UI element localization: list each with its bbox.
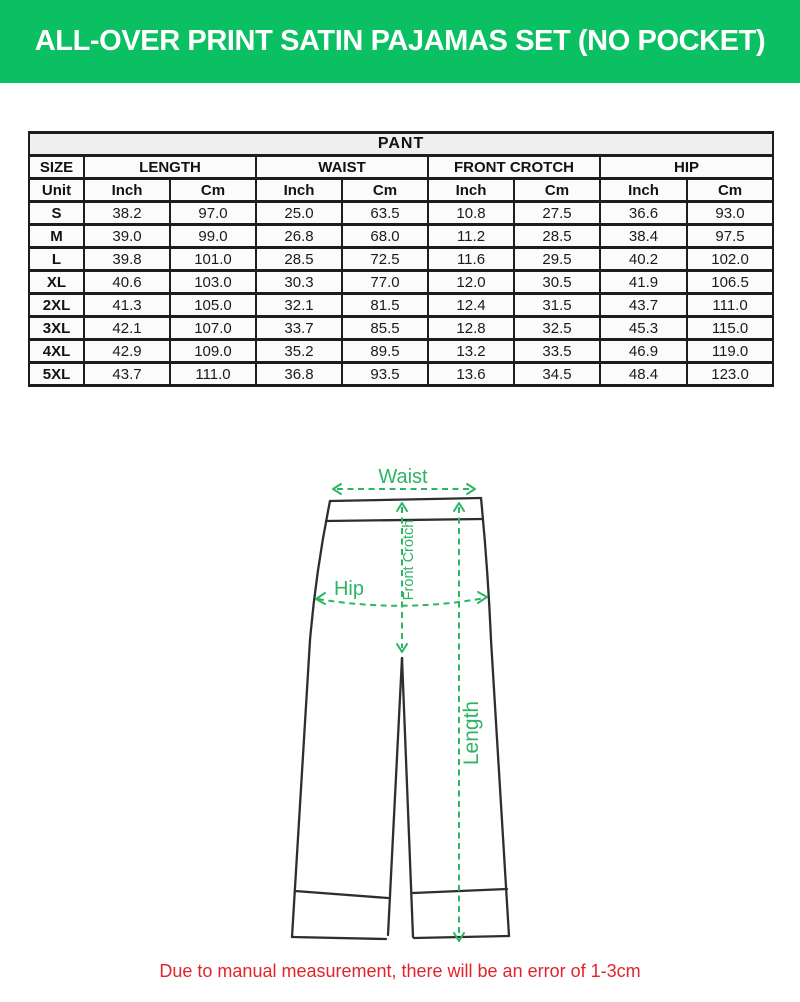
size-cell: XL <box>29 271 84 294</box>
unit-cell: Unit <box>29 179 84 202</box>
value-cell: 93.5 <box>342 363 428 386</box>
unit-cell: Cm <box>170 179 256 202</box>
value-cell: 111.0 <box>170 363 256 386</box>
size-cell: 3XL <box>29 317 84 340</box>
size-cell: 5XL <box>29 363 84 386</box>
value-cell: 26.8 <box>256 225 342 248</box>
size-cell: S <box>29 202 84 225</box>
value-cell: 42.9 <box>84 340 170 363</box>
hip-label: Hip <box>334 578 364 600</box>
table-title-row: PANT <box>29 133 773 156</box>
value-cell: 29.5 <box>514 248 600 271</box>
value-cell: 45.3 <box>600 317 687 340</box>
unit-cell: Inch <box>256 179 342 202</box>
value-cell: 28.5 <box>256 248 342 271</box>
value-cell: 89.5 <box>342 340 428 363</box>
value-cell: 123.0 <box>687 363 773 386</box>
value-cell: 36.8 <box>256 363 342 386</box>
size-cell: 4XL <box>29 340 84 363</box>
value-cell: 106.5 <box>687 271 773 294</box>
value-cell: 12.4 <box>428 294 514 317</box>
table-row: 4XL42.9109.035.289.513.233.546.9119.0 <box>29 340 773 363</box>
value-cell: 103.0 <box>170 271 256 294</box>
value-cell: 97.0 <box>170 202 256 225</box>
col-group-waist: WAIST <box>256 156 428 179</box>
value-cell: 35.2 <box>256 340 342 363</box>
unit-cell: Inch <box>600 179 687 202</box>
value-cell: 40.2 <box>600 248 687 271</box>
value-cell: 109.0 <box>170 340 256 363</box>
value-cell: 27.5 <box>514 202 600 225</box>
col-group-length: LENGTH <box>84 156 256 179</box>
unit-cell: Inch <box>84 179 170 202</box>
value-cell: 105.0 <box>170 294 256 317</box>
table-group-row: SIZE LENGTH WAIST FRONT CROTCH HIP <box>29 156 773 179</box>
unit-cell: Cm <box>687 179 773 202</box>
value-cell: 33.5 <box>514 340 600 363</box>
value-cell: 38.2 <box>84 202 170 225</box>
value-cell: 119.0 <box>687 340 773 363</box>
value-cell: 72.5 <box>342 248 428 271</box>
value-cell: 12.8 <box>428 317 514 340</box>
value-cell: 30.5 <box>514 271 600 294</box>
value-cell: 34.5 <box>514 363 600 386</box>
length-label: Length <box>460 701 483 765</box>
table-row: XL40.6103.030.377.012.030.541.9106.5 <box>29 271 773 294</box>
value-cell: 39.0 <box>84 225 170 248</box>
table-unit-row: Unit Inch Cm Inch Cm Inch Cm Inch Cm <box>29 179 773 202</box>
size-cell: L <box>29 248 84 271</box>
value-cell: 102.0 <box>687 248 773 271</box>
header-banner: ALL-OVER PRINT SATIN PAJAMAS SET (NO POC… <box>0 0 800 83</box>
value-cell: 25.0 <box>256 202 342 225</box>
value-cell: 77.0 <box>342 271 428 294</box>
value-cell: 107.0 <box>170 317 256 340</box>
value-cell: 81.5 <box>342 294 428 317</box>
size-table: PANT SIZE LENGTH WAIST FRONT CROTCH HIP … <box>28 131 774 387</box>
value-cell: 115.0 <box>687 317 773 340</box>
value-cell: 28.5 <box>514 225 600 248</box>
value-cell: 36.6 <box>600 202 687 225</box>
col-group-size: SIZE <box>29 156 84 179</box>
value-cell: 31.5 <box>514 294 600 317</box>
value-cell: 11.2 <box>428 225 514 248</box>
unit-cell: Cm <box>342 179 428 202</box>
value-cell: 97.5 <box>687 225 773 248</box>
col-group-front-crotch: FRONT CROTCH <box>428 156 600 179</box>
table-row: L39.8101.028.572.511.629.540.2102.0 <box>29 248 773 271</box>
unit-cell: Cm <box>514 179 600 202</box>
table-title: PANT <box>29 133 773 156</box>
size-table-body: S38.297.025.063.510.827.536.693.0M39.099… <box>29 202 773 386</box>
value-cell: 40.6 <box>84 271 170 294</box>
size-chart-page: ALL-OVER PRINT SATIN PAJAMAS SET (NO POC… <box>0 0 800 1002</box>
value-cell: 12.0 <box>428 271 514 294</box>
unit-cell: Inch <box>428 179 514 202</box>
value-cell: 30.3 <box>256 271 342 294</box>
value-cell: 85.5 <box>342 317 428 340</box>
page-title: ALL-OVER PRINT SATIN PAJAMAS SET (NO POC… <box>35 25 766 58</box>
value-cell: 111.0 <box>687 294 773 317</box>
table-row: 5XL43.7111.036.893.513.634.548.4123.0 <box>29 363 773 386</box>
value-cell: 93.0 <box>687 202 773 225</box>
value-cell: 11.6 <box>428 248 514 271</box>
pants-diagram: Waist Front Crotch Hip Length <box>270 455 530 955</box>
value-cell: 99.0 <box>170 225 256 248</box>
measurement-disclaimer: Due to manual measurement, there will be… <box>0 961 800 982</box>
value-cell: 101.0 <box>170 248 256 271</box>
table-row: M39.099.026.868.011.228.538.497.5 <box>29 225 773 248</box>
front-crotch-label: Front Crotch <box>401 520 417 601</box>
value-cell: 13.2 <box>428 340 514 363</box>
table-row: S38.297.025.063.510.827.536.693.0 <box>29 202 773 225</box>
value-cell: 46.9 <box>600 340 687 363</box>
value-cell: 10.8 <box>428 202 514 225</box>
waist-label: Waist <box>378 466 428 488</box>
value-cell: 43.7 <box>600 294 687 317</box>
value-cell: 41.9 <box>600 271 687 294</box>
size-cell: M <box>29 225 84 248</box>
value-cell: 32.5 <box>514 317 600 340</box>
value-cell: 41.3 <box>84 294 170 317</box>
value-cell: 13.6 <box>428 363 514 386</box>
size-cell: 2XL <box>29 294 84 317</box>
value-cell: 33.7 <box>256 317 342 340</box>
table-row: 2XL41.3105.032.181.512.431.543.7111.0 <box>29 294 773 317</box>
value-cell: 42.1 <box>84 317 170 340</box>
value-cell: 38.4 <box>600 225 687 248</box>
value-cell: 68.0 <box>342 225 428 248</box>
value-cell: 43.7 <box>84 363 170 386</box>
value-cell: 48.4 <box>600 363 687 386</box>
value-cell: 32.1 <box>256 294 342 317</box>
value-cell: 39.8 <box>84 248 170 271</box>
table-row: 3XL42.1107.033.785.512.832.545.3115.0 <box>29 317 773 340</box>
col-group-hip: HIP <box>600 156 773 179</box>
value-cell: 63.5 <box>342 202 428 225</box>
